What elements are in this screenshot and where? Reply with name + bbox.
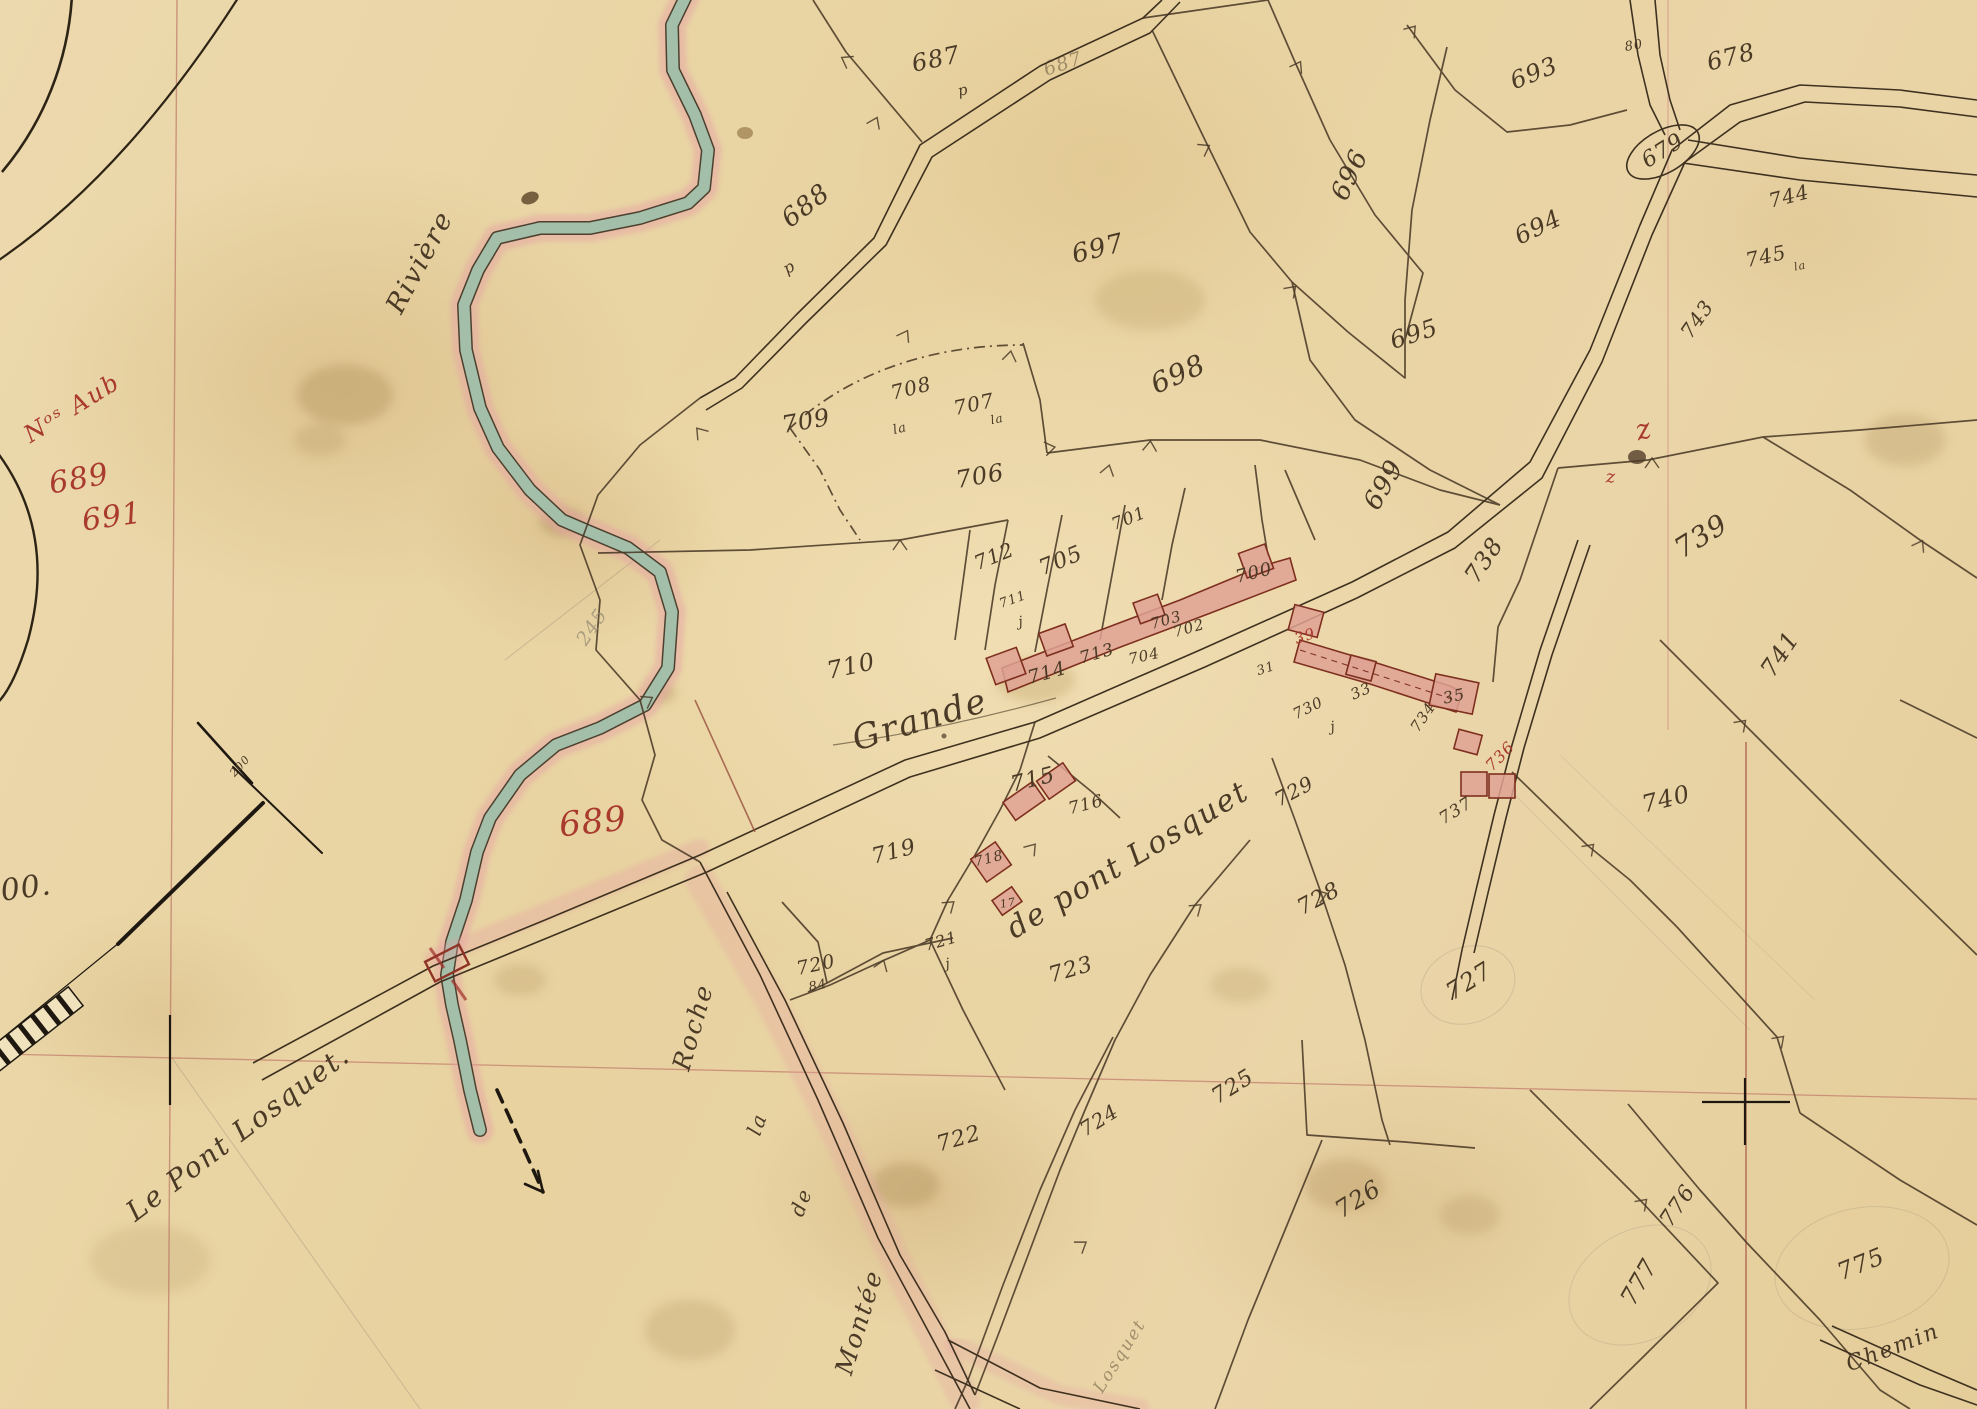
sheet-grid-lines xyxy=(0,0,1977,1409)
village-lane-south xyxy=(1452,540,1590,1000)
cadastral-map: RivièreGrandeLe Pont Losquet.de pont Los… xyxy=(0,0,1977,1409)
boundary-ticks xyxy=(640,22,1928,1254)
roads xyxy=(253,0,1977,1409)
chemin-bottom-right xyxy=(1820,1326,1977,1405)
lane-north xyxy=(1630,0,1680,135)
neighbor-sheet-arcs xyxy=(0,0,240,706)
road-washes xyxy=(433,848,1140,1409)
road-branch-east xyxy=(1683,140,1977,197)
buildings xyxy=(971,544,1515,915)
upper-chemin xyxy=(700,0,1180,410)
river-pink-halo xyxy=(447,0,708,1130)
red-boundary-line xyxy=(695,700,755,832)
map-linework xyxy=(0,0,1977,1409)
road-fork-island xyxy=(1618,114,1708,190)
pencil-marks xyxy=(505,540,1961,1369)
river xyxy=(447,0,708,1130)
survey-hatched-band xyxy=(0,987,83,1080)
ink-blots xyxy=(519,127,1646,464)
parcel-boundaries xyxy=(580,0,1977,1409)
